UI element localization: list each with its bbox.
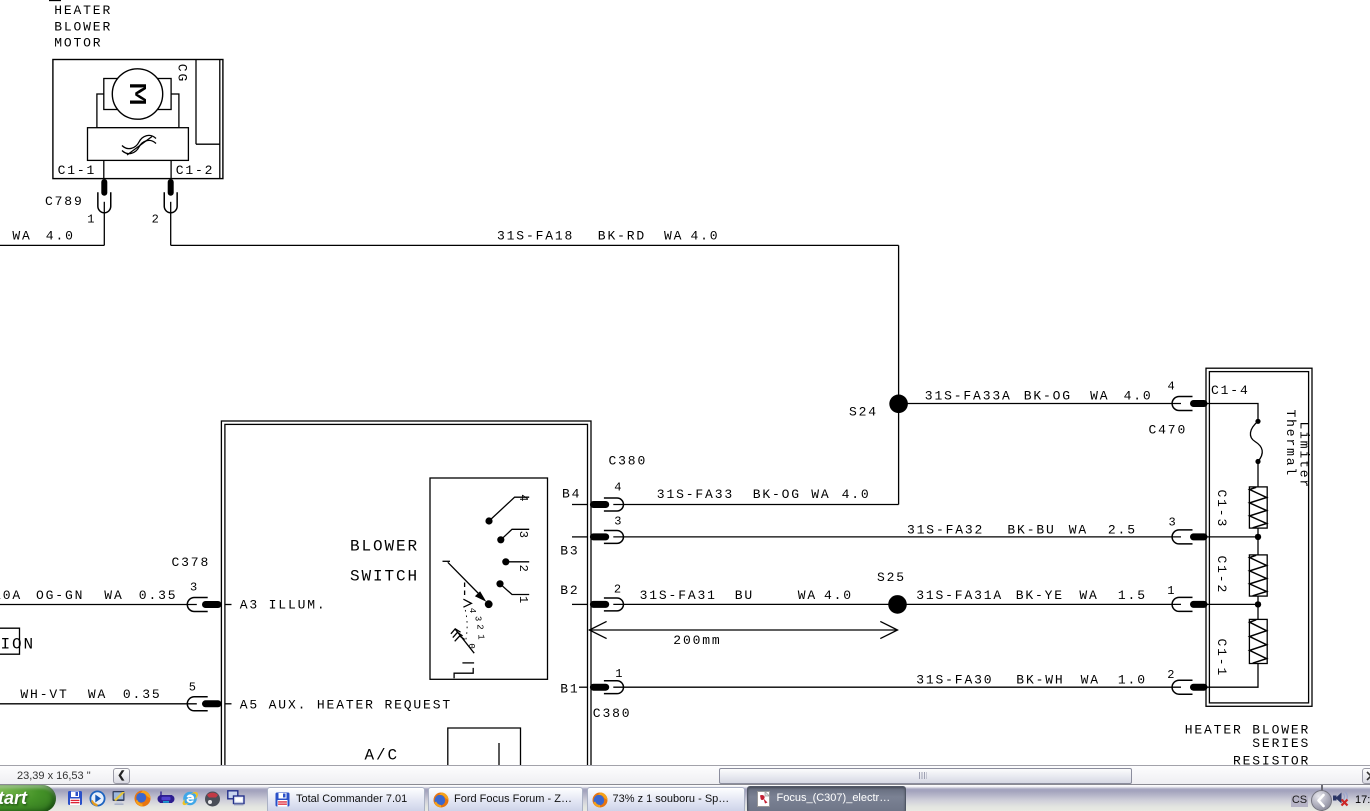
svg-text:M: M xyxy=(122,82,149,107)
svg-text:2: 2 xyxy=(475,624,485,629)
svg-text:SWITCH: SWITCH xyxy=(350,568,419,586)
svg-text:1: 1 xyxy=(516,596,530,603)
svg-text:C1-1: C1-1 xyxy=(58,163,97,178)
svg-text:3: 3 xyxy=(516,531,530,538)
svg-text:C470: C470 xyxy=(1149,423,1188,438)
svg-text:5: 5 xyxy=(189,681,196,695)
svg-text:A3 ILLUM.: A3 ILLUM. xyxy=(240,598,327,613)
svg-text:C1-2: C1-2 xyxy=(176,163,215,178)
svg-text:BK-BU: BK-BU xyxy=(1007,523,1055,538)
svg-text:WA: WA xyxy=(1069,523,1088,538)
svg-text:C1-3: C1-3 xyxy=(1214,490,1229,529)
svg-text:4.0: 4.0 xyxy=(46,228,75,243)
svg-text:A5 AUX. HEATER REQUEST: A5 AUX. HEATER REQUEST xyxy=(240,697,452,712)
svg-text:4: 4 xyxy=(1168,380,1175,394)
svg-text:4.0: 4.0 xyxy=(824,588,853,603)
svg-text:1: 1 xyxy=(87,213,94,227)
svg-text:4.0: 4.0 xyxy=(1124,389,1153,404)
svg-text:4.0: 4.0 xyxy=(842,487,871,502)
svg-text:31S-FA30: 31S-FA30 xyxy=(916,673,993,688)
svg-text:SERIES: SERIES xyxy=(1252,736,1310,751)
svg-text:2: 2 xyxy=(1167,668,1174,682)
svg-text:B4: B4 xyxy=(562,487,581,502)
svg-text:S25: S25 xyxy=(877,570,906,585)
svg-text:2: 2 xyxy=(152,213,159,227)
svg-text:0.35: 0.35 xyxy=(139,588,178,603)
svg-text:C1-1: C1-1 xyxy=(1214,639,1229,678)
svg-text:10A: 10A xyxy=(0,588,22,603)
svg-text:3: 3 xyxy=(472,616,482,621)
svg-text:31S-FA33A: 31S-FA33A xyxy=(925,389,1012,404)
svg-text:WA: WA xyxy=(664,228,683,243)
svg-text:4: 4 xyxy=(516,494,530,501)
svg-text:31S-FA31A: 31S-FA31A xyxy=(916,588,1003,603)
svg-text:C1-4: C1-4 xyxy=(1211,383,1250,398)
svg-text:31S-FA32: 31S-FA32 xyxy=(907,523,984,538)
svg-text:WA: WA xyxy=(1079,588,1098,603)
svg-text:ION: ION xyxy=(1,636,36,654)
svg-text:1.0: 1.0 xyxy=(1118,673,1147,688)
svg-text:WA: WA xyxy=(1090,389,1109,404)
svg-text:2: 2 xyxy=(516,565,530,572)
svg-text:1: 1 xyxy=(1167,584,1174,598)
svg-text:C380: C380 xyxy=(609,454,648,469)
svg-text:BK-OG: BK-OG xyxy=(753,487,801,502)
svg-text:C378: C378 xyxy=(172,555,211,570)
svg-text:C380: C380 xyxy=(593,706,632,721)
svg-text:1: 1 xyxy=(615,667,622,681)
svg-text:200mm: 200mm xyxy=(673,633,721,648)
svg-text:B2: B2 xyxy=(560,583,579,598)
svg-text:1.5: 1.5 xyxy=(1118,588,1147,603)
svg-text:B1: B1 xyxy=(560,681,579,696)
svg-text:MOTOR: MOTOR xyxy=(54,36,102,51)
svg-text:2: 2 xyxy=(614,583,621,597)
svg-text:WA: WA xyxy=(88,687,107,702)
svg-text:WA: WA xyxy=(12,228,31,243)
svg-text:BU: BU xyxy=(735,588,754,603)
svg-text:C1-2: C1-2 xyxy=(1214,556,1229,595)
svg-text:31S-FA18: 31S-FA18 xyxy=(497,228,574,243)
svg-text:BK-YE: BK-YE xyxy=(1016,588,1064,603)
svg-text:WH-VT: WH-VT xyxy=(20,687,68,702)
svg-text:31S-FA33: 31S-FA33 xyxy=(657,487,734,502)
svg-text:4: 4 xyxy=(467,608,477,613)
svg-text:31S-FA31: 31S-FA31 xyxy=(640,588,717,603)
svg-text:1: 1 xyxy=(475,634,485,639)
svg-text:2.5: 2.5 xyxy=(1108,523,1137,538)
svg-text:0.35: 0.35 xyxy=(123,687,162,702)
svg-text:3: 3 xyxy=(614,514,621,528)
svg-text:WA: WA xyxy=(104,588,123,603)
svg-text:S24: S24 xyxy=(849,405,878,420)
svg-text:4: 4 xyxy=(614,481,621,495)
svg-text:WA: WA xyxy=(798,588,817,603)
svg-text:Limiter: Limiter xyxy=(1296,422,1311,490)
svg-text:BK-RD: BK-RD xyxy=(598,228,646,243)
svg-text:WA: WA xyxy=(811,487,830,502)
svg-text:B3: B3 xyxy=(560,543,579,558)
svg-text:4.0: 4.0 xyxy=(691,228,720,243)
svg-text:C789: C789 xyxy=(45,194,84,209)
svg-text:3: 3 xyxy=(190,581,197,595)
svg-text:BK-WH: BK-WH xyxy=(1016,673,1064,688)
svg-text:BLOWER: BLOWER xyxy=(350,538,419,556)
svg-text:BLOWER: BLOWER xyxy=(54,20,112,35)
svg-text:HEATER: HEATER xyxy=(54,3,112,18)
svg-text:OG-GN: OG-GN xyxy=(36,588,84,603)
svg-text:BK-OG: BK-OG xyxy=(1024,389,1072,404)
svg-text:3: 3 xyxy=(1169,516,1176,530)
svg-text:WA: WA xyxy=(1081,673,1100,688)
svg-text:Thermal: Thermal xyxy=(1283,410,1298,478)
svg-text:A/C: A/C xyxy=(365,747,400,765)
svg-text:CG: CG xyxy=(175,64,190,83)
